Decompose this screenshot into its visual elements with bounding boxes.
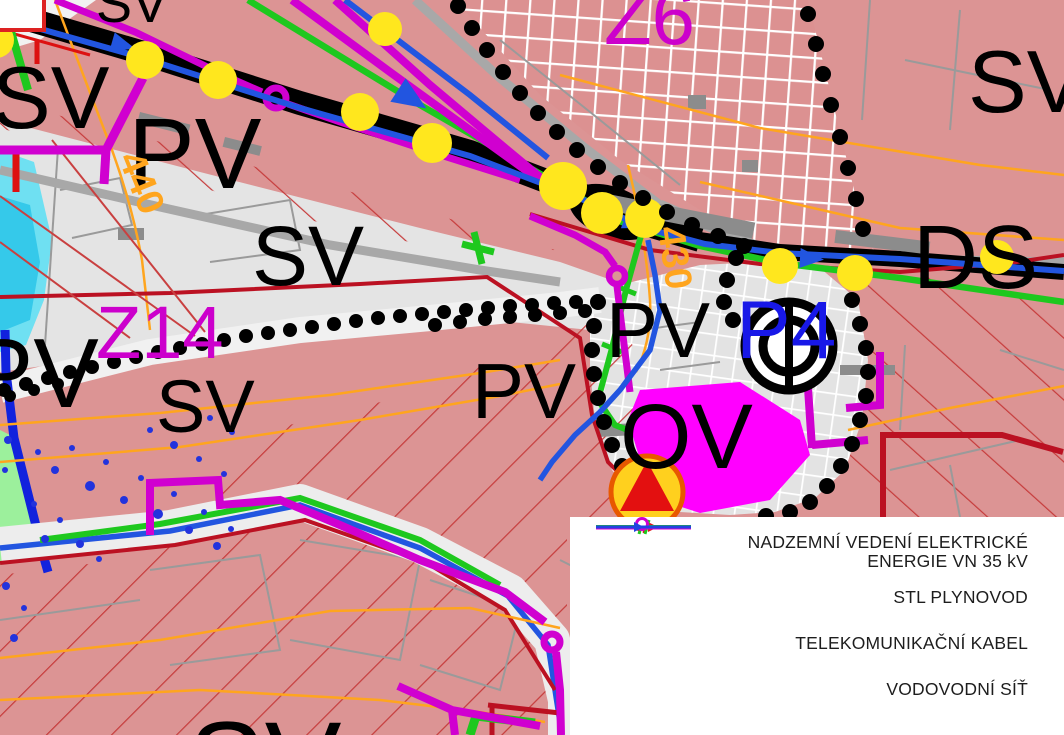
area-label-pv-west: PV <box>0 318 99 428</box>
area-label-sv-left: SV <box>0 48 110 147</box>
area-label-pv-center: PV <box>472 347 576 435</box>
zone-code-z14: Z14 <box>96 291 224 374</box>
contour-label-430: 430 <box>649 223 699 292</box>
zone-code-p4: P4 <box>736 285 836 376</box>
map-legend: NADZEMNÍ VEDENÍ ELEKTRICKÉ ENERGIE VN 35… <box>570 517 1064 735</box>
area-label-sv-top: SV <box>96 0 168 34</box>
area-label-sv-ne: SV <box>968 32 1064 131</box>
legend-item-telecom: TELEKOMUNIKAČNÍ KABEL <box>570 634 1064 653</box>
area-label-sv-west: SV <box>156 365 255 448</box>
legend-item-water: VODOVODNÍ SÍŤ <box>570 680 1064 699</box>
legend-label-electric: NADZEMNÍ VEDENÍ ELEKTRICKÉ ENERGIE VN 35… <box>698 533 1028 571</box>
legend-label-telecom: TELEKOMUNIKAČNÍ KABEL <box>698 634 1028 653</box>
boundary-marker-rect <box>0 0 44 30</box>
legend-item-gas: STL PLYNOVOD <box>570 588 1064 607</box>
zoning-map-view: SV SV PV SV Z6 SV DS Z14 PV SV PV PV P4 … <box>0 0 1064 735</box>
legend-label-water: VODOVODNÍ SÍŤ <box>698 680 1028 699</box>
area-label-sv-mid: SV <box>252 209 364 303</box>
water-line-icon <box>596 517 691 537</box>
area-label-ov: OV <box>620 386 753 488</box>
legend-label-gas: STL PLYNOVOD <box>698 588 1028 607</box>
area-label-sv-bottom: SV <box>188 699 342 735</box>
zone-code-z6: Z6 <box>604 0 695 61</box>
legend-item-electric: NADZEMNÍ VEDENÍ ELEKTRICKÉ ENERGIE VN 35… <box>570 533 1064 571</box>
area-label-pv-east: PV <box>606 286 710 374</box>
area-label-ds: DS <box>913 208 1038 308</box>
